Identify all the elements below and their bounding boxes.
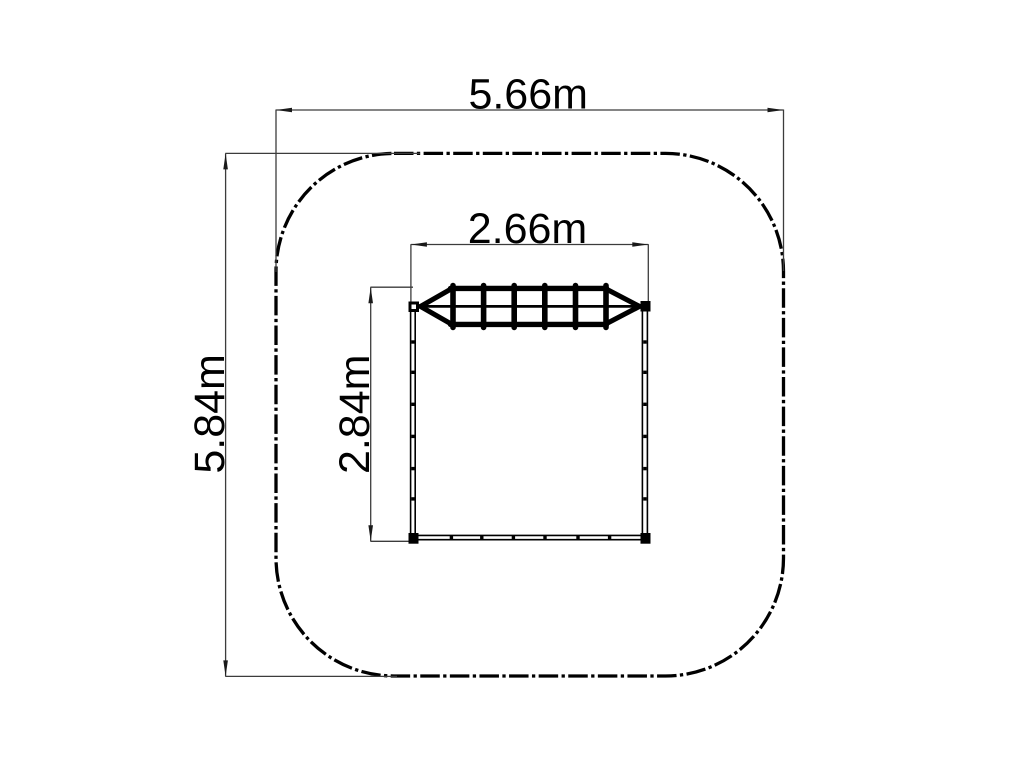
svg-text:2.84m: 2.84m — [331, 355, 379, 475]
svg-text:5.84m: 5.84m — [186, 354, 234, 474]
svg-text:5.66m: 5.66m — [468, 70, 588, 118]
svg-text:2.66m: 2.66m — [468, 205, 588, 253]
